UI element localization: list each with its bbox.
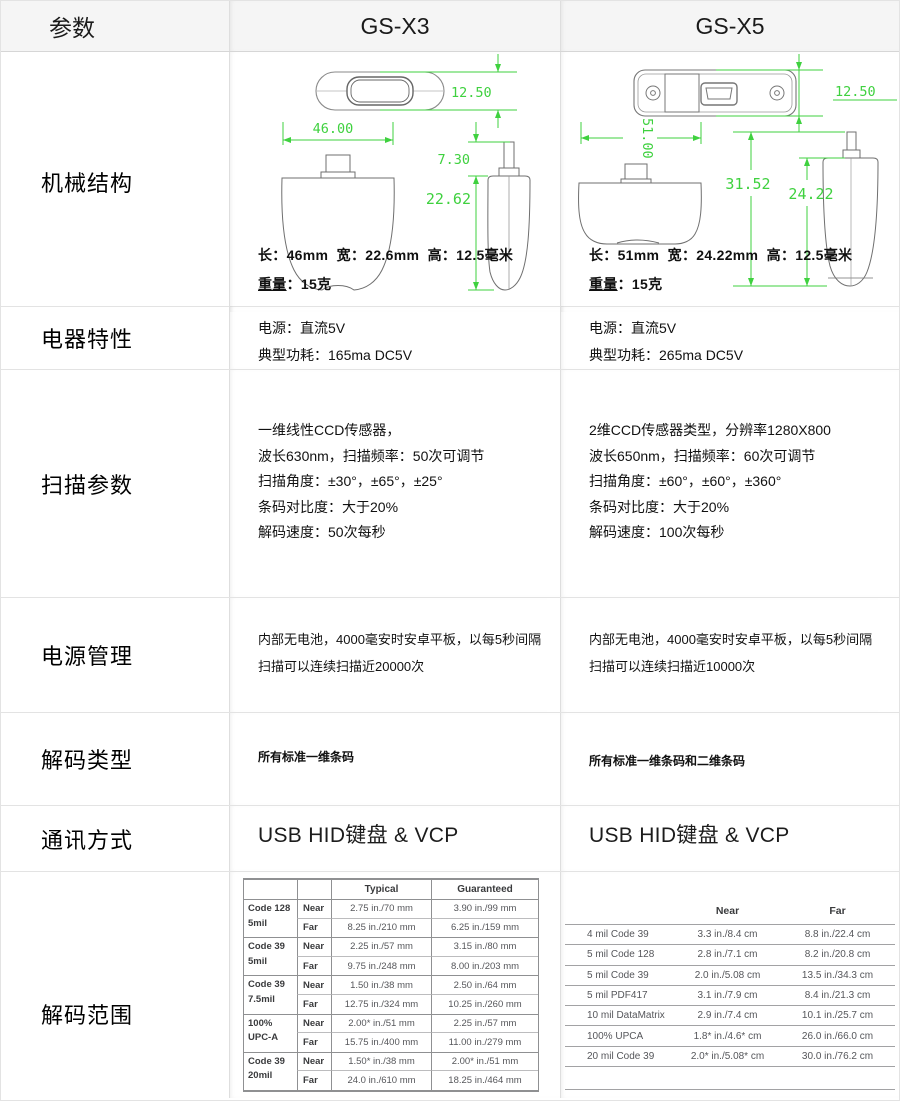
x3-code-label: Code 1285mil bbox=[244, 900, 297, 937]
near-value: 2.0 in./5.08 cm bbox=[675, 970, 780, 981]
near-guaranteed: 3.90 in./99 mm bbox=[431, 900, 538, 919]
symbology-label: 4 mil Code 39 bbox=[565, 929, 675, 940]
x3-power-consumption: 典型功耗：165ma DC5V bbox=[258, 342, 560, 369]
x3-code-label: 100%UPC-A bbox=[244, 1015, 297, 1052]
x5-range-header-row: Near Far bbox=[565, 898, 895, 924]
x3-weight-value: ：15克 bbox=[287, 276, 332, 292]
far-typical: 15.75 in./400 mm bbox=[331, 1033, 431, 1052]
far-typical: 12.75 in./324 mm bbox=[331, 995, 431, 1014]
range-x5-cell: Near Far 4 mil Code 39 3.3 in./8.4 cm 8.… bbox=[560, 872, 899, 1098]
row-electrical: 电器特性 电源：直流5V 典型功耗：165ma DC5V 电源：直流5V 典型功… bbox=[1, 307, 899, 370]
near-label: Near bbox=[297, 1015, 331, 1034]
far-label: Far bbox=[297, 995, 331, 1014]
mechanical-x5-cell: 12.50 51.00 bbox=[560, 52, 899, 312]
near-typical: 1.50 in./38 mm bbox=[331, 976, 431, 995]
far-guaranteed: 10.25 in./260 mm bbox=[431, 995, 538, 1014]
x5-power-consumption: 典型功耗：265ma DC5V bbox=[589, 342, 899, 369]
near-guaranteed: 3.15 in./80 mm bbox=[431, 938, 538, 957]
x5-col-near: Near bbox=[675, 905, 780, 917]
gs-x3-title: GS-X3 bbox=[360, 13, 429, 40]
symbology-label: 5 mil PDF417 bbox=[565, 990, 675, 1001]
symbology-label: 10 mil DataMatrix bbox=[565, 1010, 675, 1021]
table-row: 20 mil Code 39 2.0* in./5.08* cm 30.0 in… bbox=[565, 1046, 895, 1066]
near-label: Near bbox=[297, 1053, 331, 1072]
table-row: 5 mil PDF417 3.1 in./7.9 cm 8.4 in./21.3… bbox=[565, 985, 895, 1005]
x3-range-header-row: Typical Guaranteed bbox=[244, 880, 538, 900]
x3-col-typical: Typical bbox=[331, 880, 431, 899]
x5-weight-value: ：15克 bbox=[618, 276, 663, 292]
x5-contrast: 条码对比度：大于20% bbox=[589, 495, 899, 521]
row-scanning: 扫描参数 一维线性CCD传感器， 波长630nm，扫描频率：50次可调节 扫描角… bbox=[1, 370, 899, 598]
decode-type-x5-cell: 所有标准一维条码和二维条码 bbox=[560, 713, 899, 805]
x5-dim-total: 31.52 bbox=[725, 175, 770, 193]
near-typical: 1.50* in./38 mm bbox=[331, 1053, 431, 1072]
table-row: Code 395mil Near 2.25 in./57 mm 3.15 in.… bbox=[244, 938, 538, 976]
row-label-mechanical: 机械结构 bbox=[1, 52, 229, 312]
near-typical: 2.75 in./70 mm bbox=[331, 900, 431, 919]
x5-decode-speed: 解码速度：100次每秒 bbox=[589, 520, 899, 546]
table-header-row: 参数 GS-X3 GS-X5 bbox=[1, 1, 899, 52]
far-label: Far bbox=[297, 957, 331, 976]
near-value: 2.0* in./5.08* cm bbox=[675, 1051, 780, 1062]
near-guaranteed: 2.25 in./57 mm bbox=[431, 1015, 538, 1034]
x3-decode-speed: 解码速度：50次每秒 bbox=[258, 520, 560, 546]
power-x5-cell: 内部无电池，4000毫安时安卓平板，以每5秒间隔扫描可以连续扫描近10000次 bbox=[560, 598, 878, 712]
x5-weight-label: 重量 bbox=[589, 276, 618, 292]
x3-wavelength: 波长630nm，扫描频率：50次可调节 bbox=[258, 444, 560, 470]
comm-x5-cell: USB HID键盘 & VCP bbox=[560, 806, 899, 871]
x5-wavelength: 波长650nm，扫描频率：60次可调节 bbox=[589, 444, 899, 470]
row-communication: 通讯方式 USB HID键盘 & VCP USB HID键盘 & VCP bbox=[1, 806, 899, 872]
comm-x3-cell: USB HID键盘 & VCP bbox=[229, 806, 560, 871]
table-row: 10 mil DataMatrix 2.9 in./7.4 cm 10.1 in… bbox=[565, 1005, 895, 1025]
electrical-x5-cell: 电源：直流5V 典型功耗：265ma DC5V bbox=[560, 307, 899, 369]
row-decode-range: 解码范围 Typical Guaranteed Code 1285mil Nea… bbox=[1, 872, 899, 1098]
x5-dim-body: 24.22 bbox=[788, 185, 833, 203]
far-guaranteed: 18.25 in./464 mm bbox=[431, 1071, 538, 1090]
symbology-label: 5 mil Code 128 bbox=[565, 949, 675, 960]
table-row: Code 3920mil Near 1.50* in./38 mm 2.00* … bbox=[244, 1053, 538, 1090]
near-value: 2.9 in./7.4 cm bbox=[675, 1010, 780, 1021]
mechanical-x3-cell: 12.50 46.00 bbox=[229, 52, 560, 312]
row-power: 电源管理 内部无电池，4000毫安时安卓平板，以每5秒间隔扫描可以连续扫描近20… bbox=[1, 598, 899, 713]
x5-sensor: 2维CCD传感器类型，分辨率1280X800 bbox=[589, 418, 899, 444]
far-typical: 9.75 in./248 mm bbox=[331, 957, 431, 976]
x5-dim-height: 12.50 bbox=[835, 84, 876, 100]
near-value: 3.1 in./7.9 cm bbox=[675, 990, 780, 1001]
far-value: 13.5 in./34.3 cm bbox=[780, 970, 895, 981]
far-typical: 24.0 in./610 mm bbox=[331, 1071, 431, 1090]
x3-dim-length: 46.00 bbox=[313, 121, 354, 137]
x3-col-guaranteed: Guaranteed bbox=[431, 880, 538, 899]
x5-decode-range-table: Near Far 4 mil Code 39 3.3 in./8.4 cm 8.… bbox=[565, 898, 895, 1090]
power-x3-cell: 内部无电池，4000毫安时安卓平板，以每5秒间隔扫描可以连续扫描近20000次 bbox=[229, 598, 547, 712]
table-row: 4 mil Code 39 3.3 in./8.4 cm 8.8 in./22.… bbox=[565, 924, 895, 944]
header-parameter: 参数 bbox=[1, 1, 229, 51]
far-guaranteed: 11.00 in./279 mm bbox=[431, 1033, 538, 1052]
near-label: Near bbox=[297, 976, 331, 995]
x3-size-caption: 长：46mm 宽：22.6mm 高：12.5毫米 bbox=[258, 245, 513, 265]
x3-decode-range-table: Typical Guaranteed Code 1285mil Near 2.7… bbox=[243, 878, 539, 1092]
header-gs-x5: GS-X5 bbox=[560, 1, 899, 51]
far-value: 8.4 in./21.3 cm bbox=[780, 990, 895, 1001]
x3-code-label: Code 397.5mil bbox=[244, 976, 297, 1013]
gs-x5-title: GS-X5 bbox=[695, 13, 764, 40]
table-row: Code 1285mil Near 2.75 in./70 mm 3.90 in… bbox=[244, 900, 538, 938]
row-label-power: 电源管理 bbox=[1, 598, 229, 712]
header-parameter-label: 参数 bbox=[49, 9, 95, 43]
x3-code-label: Code 395mil bbox=[244, 938, 297, 975]
x3-scan-angle: 扫描角度：±30°，±65°，±25° bbox=[258, 469, 560, 495]
far-label: Far bbox=[297, 919, 331, 938]
x5-technical-drawing: 12.50 51.00 bbox=[561, 52, 900, 307]
x3-dim-body: 22.62 bbox=[426, 190, 471, 208]
near-value: 2.8 in./7.1 cm bbox=[675, 949, 780, 960]
near-guaranteed: 2.50 in./64 mm bbox=[431, 976, 538, 995]
far-guaranteed: 8.00 in./203 mm bbox=[431, 957, 538, 976]
near-value: 3.3 in./8.4 cm bbox=[675, 929, 780, 940]
x5-size-caption: 长：51mm 宽：24.22mm 高：12.5毫米 bbox=[589, 245, 852, 265]
near-value: 1.8* in./4.6* cm bbox=[675, 1031, 780, 1042]
far-value: 30.0 in./76.2 cm bbox=[780, 1051, 895, 1062]
x3-dim-height: 12.50 bbox=[451, 85, 492, 101]
far-label: Far bbox=[297, 1071, 331, 1090]
row-label-scanning: 扫描参数 bbox=[1, 370, 229, 597]
x3-power-supply: 电源：直流5V bbox=[258, 315, 560, 342]
far-label: Far bbox=[297, 1033, 331, 1052]
x5-dim-length: 51.00 bbox=[639, 118, 655, 159]
row-mechanical: 机械结构 12.50 bbox=[1, 52, 899, 307]
x3-sensor: 一维线性CCD传感器， bbox=[258, 418, 560, 444]
row-label-communication: 通讯方式 bbox=[1, 806, 229, 871]
x3-weight-label: 重量 bbox=[258, 276, 287, 292]
x3-contrast: 条码对比度：大于20% bbox=[258, 495, 560, 521]
x3-dim-connector: 7.30 bbox=[437, 152, 470, 168]
near-guaranteed: 2.00* in./51 mm bbox=[431, 1053, 538, 1072]
header-gs-x3: GS-X3 bbox=[229, 1, 560, 51]
x5-table-footer-space bbox=[565, 1066, 895, 1090]
far-value: 8.2 in./20.8 cm bbox=[780, 949, 895, 960]
near-label: Near bbox=[297, 900, 331, 919]
near-label: Near bbox=[297, 938, 331, 957]
x5-scan-angle: 扫描角度：±60°，±60°，±360° bbox=[589, 469, 899, 495]
table-row: 5 mil Code 128 2.8 in./7.1 cm 8.2 in./20… bbox=[565, 944, 895, 964]
far-value: 8.8 in./22.4 cm bbox=[780, 929, 895, 940]
far-guaranteed: 6.25 in./159 mm bbox=[431, 919, 538, 938]
far-value: 26.0 in./66.0 cm bbox=[780, 1031, 895, 1042]
scanning-x5-cell: 2维CCD传感器类型，分辨率1280X800 波长650nm，扫描频率：60次可… bbox=[560, 370, 899, 597]
row-label-decode-range: 解码范围 bbox=[1, 872, 229, 1098]
symbology-label: 5 mil Code 39 bbox=[565, 970, 675, 981]
decode-type-x3-cell: 所有标准一维条码 bbox=[229, 713, 560, 805]
far-value: 10.1 in./25.7 cm bbox=[780, 1010, 895, 1021]
row-label-electrical: 电器特性 bbox=[1, 307, 229, 369]
table-row: 100% UPCA 1.8* in./4.6* cm 26.0 in./66.0… bbox=[565, 1025, 895, 1045]
scanning-x3-cell: 一维线性CCD传感器， 波长630nm，扫描频率：50次可调节 扫描角度：±30… bbox=[229, 370, 560, 597]
x5-weight-caption: 重量：15克 bbox=[589, 274, 662, 294]
row-decode-type: 解码类型 所有标准一维条码 所有标准一维条码和二维条码 bbox=[1, 713, 899, 806]
table-row: Code 397.5mil Near 1.50 in./38 mm 2.50 i… bbox=[244, 976, 538, 1014]
near-typical: 2.00* in./51 mm bbox=[331, 1015, 431, 1034]
far-typical: 8.25 in./210 mm bbox=[331, 919, 431, 938]
range-x3-cell: Typical Guaranteed Code 1285mil Near 2.7… bbox=[229, 872, 560, 1098]
symbology-label: 20 mil Code 39 bbox=[565, 1051, 675, 1062]
table-row: 5 mil Code 39 2.0 in./5.08 cm 13.5 in./3… bbox=[565, 965, 895, 985]
row-label-decode-type: 解码类型 bbox=[1, 713, 229, 805]
x3-weight-caption: 重量：15克 bbox=[258, 274, 331, 294]
x3-code-label: Code 3920mil bbox=[244, 1053, 297, 1090]
x5-col-far: Far bbox=[780, 905, 895, 917]
symbology-label: 100% UPCA bbox=[565, 1031, 675, 1042]
near-typical: 2.25 in./57 mm bbox=[331, 938, 431, 957]
x3-technical-drawing: 12.50 46.00 bbox=[230, 52, 561, 307]
spec-comparison-sheet: 参数 GS-X3 GS-X5 机械结构 bbox=[0, 0, 900, 1101]
x5-power-supply: 电源：直流5V bbox=[589, 315, 899, 342]
electrical-x3-cell: 电源：直流5V 典型功耗：165ma DC5V bbox=[229, 307, 560, 369]
table-row: 100%UPC-A Near 2.00* in./51 mm 2.25 in./… bbox=[244, 1015, 538, 1053]
